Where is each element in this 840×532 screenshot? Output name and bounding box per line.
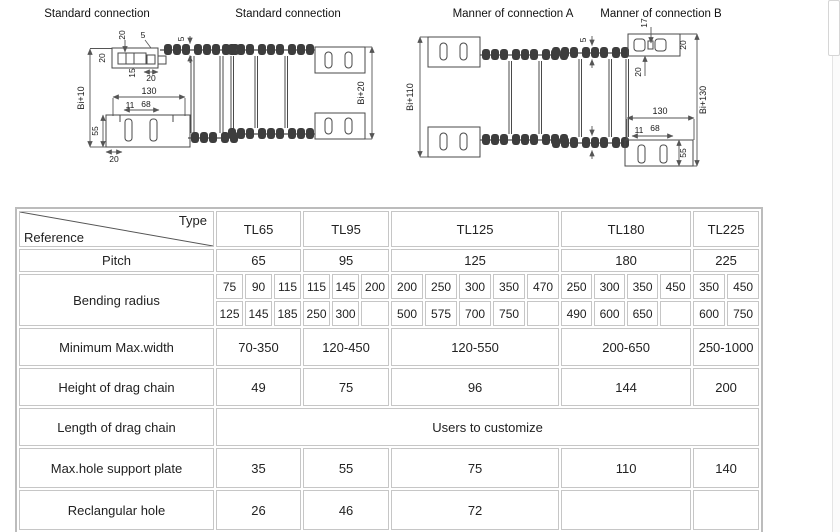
- table-cell: 200: [693, 368, 759, 406]
- table-cell: 35: [216, 448, 301, 488]
- column-header-tl95: TL95: [303, 211, 389, 247]
- table-cell: 144: [561, 368, 691, 406]
- table-cell: 500: [391, 301, 423, 326]
- table-cell: 72: [391, 490, 559, 530]
- table-cell: 90: [245, 274, 272, 299]
- table-cell: 350: [493, 274, 525, 299]
- corner-type-label: Type: [179, 213, 207, 228]
- table-cell: 145: [245, 301, 272, 326]
- table-cell: 470: [527, 274, 559, 299]
- table-cell: 250: [303, 301, 330, 326]
- dim-20-left: 20: [97, 53, 107, 63]
- table-cell: 600: [594, 301, 625, 326]
- table-cell: 95: [303, 249, 389, 272]
- table-cell: [527, 301, 559, 326]
- table-cell: 49: [216, 368, 301, 406]
- table-cell: 75: [216, 274, 243, 299]
- diagram-title-connection-a: Manner of connection A: [453, 8, 574, 20]
- dim-20-top-b: 20: [678, 40, 688, 50]
- datasheet-page: Standard connection Standard connection …: [0, 0, 840, 532]
- table-cell: 26: [216, 490, 301, 530]
- table-cell: 650: [627, 301, 658, 326]
- table-cell: 120-450: [303, 328, 389, 366]
- diagram-standard-connection-1: Bi+10 20 20 5 15 20 5: [76, 30, 239, 164]
- row-label-min-max-width: Minimum Max.width: [19, 328, 214, 366]
- table-cell: 200: [391, 274, 423, 299]
- table-cell: 125: [216, 301, 243, 326]
- dim-5-chain: 5: [176, 36, 186, 41]
- dim-20-top: 20: [117, 30, 127, 40]
- table-cell: 600: [693, 301, 725, 326]
- dim-bi110-label: Bi+110: [405, 83, 415, 111]
- table-cell: 70-350: [216, 328, 301, 366]
- scrollbar-track[interactable]: [832, 0, 840, 532]
- specification-table: Type Reference TL65 TL95 TL125 TL180 TL2…: [15, 207, 763, 532]
- diagram-title-standard-1: Standard connection: [44, 8, 150, 20]
- row-label-rect-hole: Reclangular hole: [19, 490, 214, 530]
- table-cell: 350: [693, 274, 725, 299]
- dim-130-b: 130: [652, 106, 667, 116]
- table-cell: [561, 490, 691, 530]
- table-cell: 300: [459, 274, 491, 299]
- table-cell: 750: [493, 301, 525, 326]
- table-cell: 96: [391, 368, 559, 406]
- table-cell: 185: [274, 301, 301, 326]
- table-cell-length-value: Users to customize: [216, 408, 759, 446]
- dim-11-b: 11: [635, 125, 644, 135]
- row-label-height: Height of drag chain: [19, 368, 214, 406]
- table-cell: 700: [459, 301, 491, 326]
- table-cell: 750: [727, 301, 759, 326]
- table-cell: 250-1000: [693, 328, 759, 366]
- table-cell: 200: [361, 274, 389, 299]
- dim-68: 68: [141, 99, 151, 109]
- row-label-max-hole: Max.hole support plate: [19, 448, 214, 488]
- dim-bi130-label: Bi+130: [698, 86, 708, 114]
- dim-20-below-b: 20: [633, 67, 643, 77]
- table-cell: [660, 301, 691, 326]
- table-cell: 450: [727, 274, 759, 299]
- dim-20-right: 20: [146, 73, 156, 83]
- table-cell: 120-550: [391, 328, 559, 366]
- row-label-length: Length of drag chain: [19, 408, 214, 446]
- row-label-bending-radius: Bending radius: [19, 274, 214, 326]
- dim-55-b: 55: [678, 148, 688, 158]
- table-cell: 300: [332, 301, 359, 326]
- column-header-tl225: TL225: [693, 211, 759, 247]
- table-cell: 110: [561, 448, 691, 488]
- table-cell: 125: [391, 249, 559, 272]
- dim-17: 17: [639, 18, 649, 28]
- column-header-tl65: TL65: [216, 211, 301, 247]
- dim-20-bottom: 20: [109, 154, 119, 164]
- table-cell: 300: [594, 274, 625, 299]
- dim-15: 15: [127, 68, 137, 78]
- diagram-title-connection-b: Manner of connection B: [600, 8, 722, 20]
- table-cell: 115: [274, 274, 301, 299]
- dim-5-label: 5: [578, 37, 588, 42]
- table-cell: 575: [425, 301, 457, 326]
- table-cell: 65: [216, 249, 301, 272]
- dim-bi20-label: Bi+20: [356, 81, 366, 104]
- technical-drawings: Standard connection Standard connection …: [0, 0, 840, 200]
- diagram-standard-connection-2: Bi+20: [228, 44, 372, 139]
- table-cell: 75: [303, 368, 389, 406]
- row-label-pitch: Pitch: [19, 249, 214, 272]
- corner-cell: Type Reference: [19, 211, 214, 247]
- table-cell: 225: [693, 249, 759, 272]
- column-header-tl180: TL180: [561, 211, 691, 247]
- corner-reference-label: Reference: [24, 230, 84, 245]
- table-cell: 490: [561, 301, 592, 326]
- table-cell: 200-650: [561, 328, 691, 366]
- diagram-title-standard-2: Standard connection: [235, 8, 341, 20]
- dim-bi10-label: Bi+10: [76, 86, 86, 109]
- dim-130: 130: [141, 86, 156, 96]
- table-cell: 250: [425, 274, 457, 299]
- dim-68-b: 68: [650, 123, 660, 133]
- table-cell: 46: [303, 490, 389, 530]
- table-cell: 140: [693, 448, 759, 488]
- table-cell: 350: [627, 274, 658, 299]
- table-cell: [361, 301, 389, 326]
- diagram-connection-a: Bi+110: [405, 37, 568, 157]
- table-cell: 75: [391, 448, 559, 488]
- table-cell: 250: [561, 274, 592, 299]
- table-cell: 180: [561, 249, 691, 272]
- table-cell: [693, 490, 759, 530]
- diagram-connection-b: 5 17 20 20 Bi+130: [552, 18, 708, 166]
- table-cell: 450: [660, 274, 691, 299]
- table-cell: 145: [332, 274, 359, 299]
- dim-5-top: 5: [141, 30, 146, 40]
- table-cell: 115: [303, 274, 330, 299]
- scrollbar-thumb[interactable]: [828, 0, 840, 56]
- column-header-tl125: TL125: [391, 211, 559, 247]
- table-cell: 55: [303, 448, 389, 488]
- dim-11: 11: [126, 100, 135, 110]
- dim-55: 55: [90, 126, 100, 136]
